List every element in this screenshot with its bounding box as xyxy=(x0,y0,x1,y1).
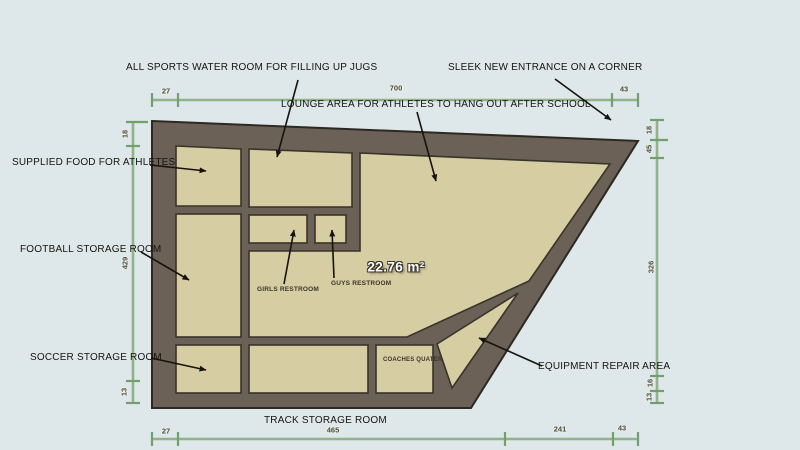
label-lounge: LOUNGE AREA FOR ATHLETES TO HANG OUT AFT… xyxy=(281,99,591,110)
dim-left-0: 18 xyxy=(121,130,130,138)
floor-plan-canvas: ALL SPORTS WATER ROOM FOR FILLING UP JUG… xyxy=(0,0,800,450)
dim-top-2: 43 xyxy=(620,85,628,94)
dim-right-0: 18 xyxy=(645,126,654,134)
label-supplied-food: SUPPLIED FOOD FOR ATHLETES xyxy=(12,157,175,168)
label-entrance: SLEEK NEW ENTRANCE ON A CORNER xyxy=(448,62,642,73)
room-guys-restroom[interactable] xyxy=(315,215,346,243)
room-soccer-storage[interactable] xyxy=(176,345,241,393)
label-track: TRACK STORAGE ROOM xyxy=(264,415,387,426)
label-guys-restroom: GUYS RESTROOM xyxy=(331,280,391,287)
label-soccer: SOCCER STORAGE ROOM xyxy=(30,352,162,363)
room-water[interactable] xyxy=(249,149,352,207)
dim-bottom-2: 241 xyxy=(554,425,567,434)
dim-left-2: 13 xyxy=(120,388,129,396)
dim-right-1: 45 xyxy=(645,145,654,153)
dim-right-3: 16 xyxy=(646,379,655,387)
label-football: FOOTBALL STORAGE ROOM xyxy=(20,244,161,255)
label-equipment: EQUIPMENT REPAIR AREA xyxy=(538,361,670,372)
dim-bottom-1: 465 xyxy=(327,426,340,435)
label-girls-restroom: GIRLS RESTROOM xyxy=(257,286,319,293)
dim-left-1: 429 xyxy=(121,257,130,270)
label-coaches-quarter: COACHES QUATER xyxy=(383,357,442,363)
dim-bottom-3: 43 xyxy=(618,424,626,433)
room-coaches-quarter[interactable] xyxy=(376,345,433,393)
room-track-storage[interactable] xyxy=(249,345,368,393)
label-water-room: ALL SPORTS WATER ROOM FOR FILLING UP JUG… xyxy=(126,62,377,73)
area-value: 22.76 m² xyxy=(367,260,424,275)
dim-bottom-0: 27 xyxy=(162,427,170,436)
room-supplied-food[interactable] xyxy=(176,146,241,206)
dim-right-2: 326 xyxy=(647,261,656,274)
floor-plan-drawing xyxy=(0,0,800,450)
dim-top-1: 700 xyxy=(390,84,403,93)
dim-right-4: 13 xyxy=(645,393,654,401)
dim-top-0: 27 xyxy=(162,87,170,96)
room-girls-restroom[interactable] xyxy=(249,215,307,243)
room-football-storage[interactable] xyxy=(176,214,241,337)
